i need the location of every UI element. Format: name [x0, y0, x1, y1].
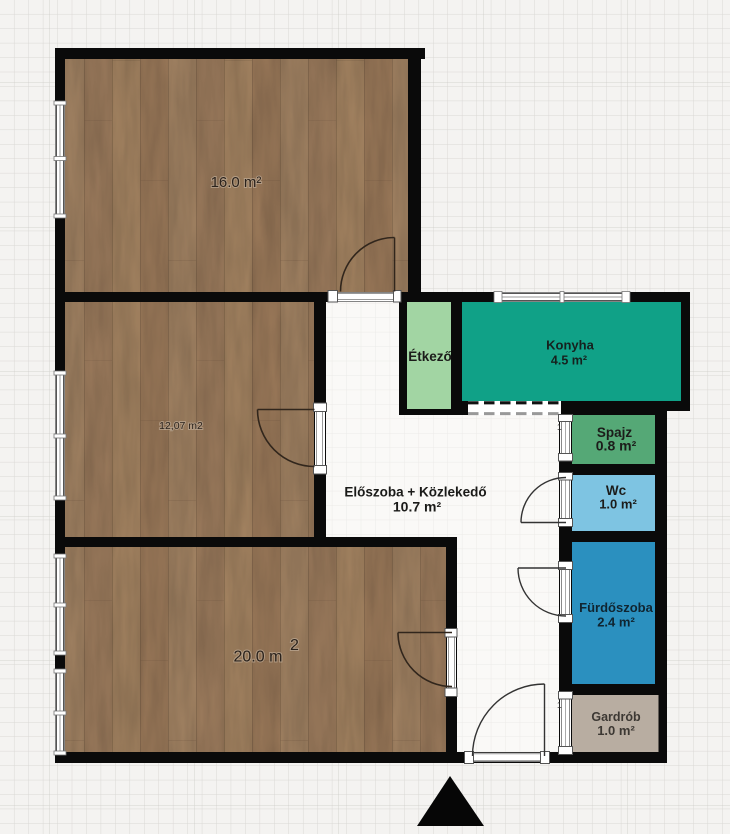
svg-text:10.7 m²: 10.7 m²	[393, 499, 442, 515]
svg-text:16.0 m²: 16.0 m²	[211, 174, 262, 191]
svg-text:Fürdőszoba: Fürdőszoba	[579, 600, 653, 615]
svg-text:12,07 m2: 12,07 m2	[159, 420, 203, 432]
svg-text:20.0 m: 20.0 m	[234, 649, 283, 666]
svg-text:0.8 m²: 0.8 m²	[596, 438, 637, 454]
svg-text:2: 2	[290, 637, 299, 654]
svg-text:1.0 m²: 1.0 m²	[597, 723, 635, 738]
svg-text:Étkező: Étkező	[408, 349, 452, 364]
svg-text:Gardrób: Gardrób	[591, 710, 641, 724]
svg-text:Előszoba + Közlekedő: Előszoba + Közlekedő	[344, 485, 486, 500]
svg-text:1: 1	[557, 700, 562, 710]
svg-text:1: 1	[557, 422, 562, 432]
svg-text:Konyha: Konyha	[546, 338, 594, 353]
svg-text:4.5 m²: 4.5 m²	[551, 354, 587, 368]
svg-text:1.0 m²: 1.0 m²	[599, 497, 637, 512]
svg-text:2.4 m²: 2.4 m²	[597, 615, 635, 630]
